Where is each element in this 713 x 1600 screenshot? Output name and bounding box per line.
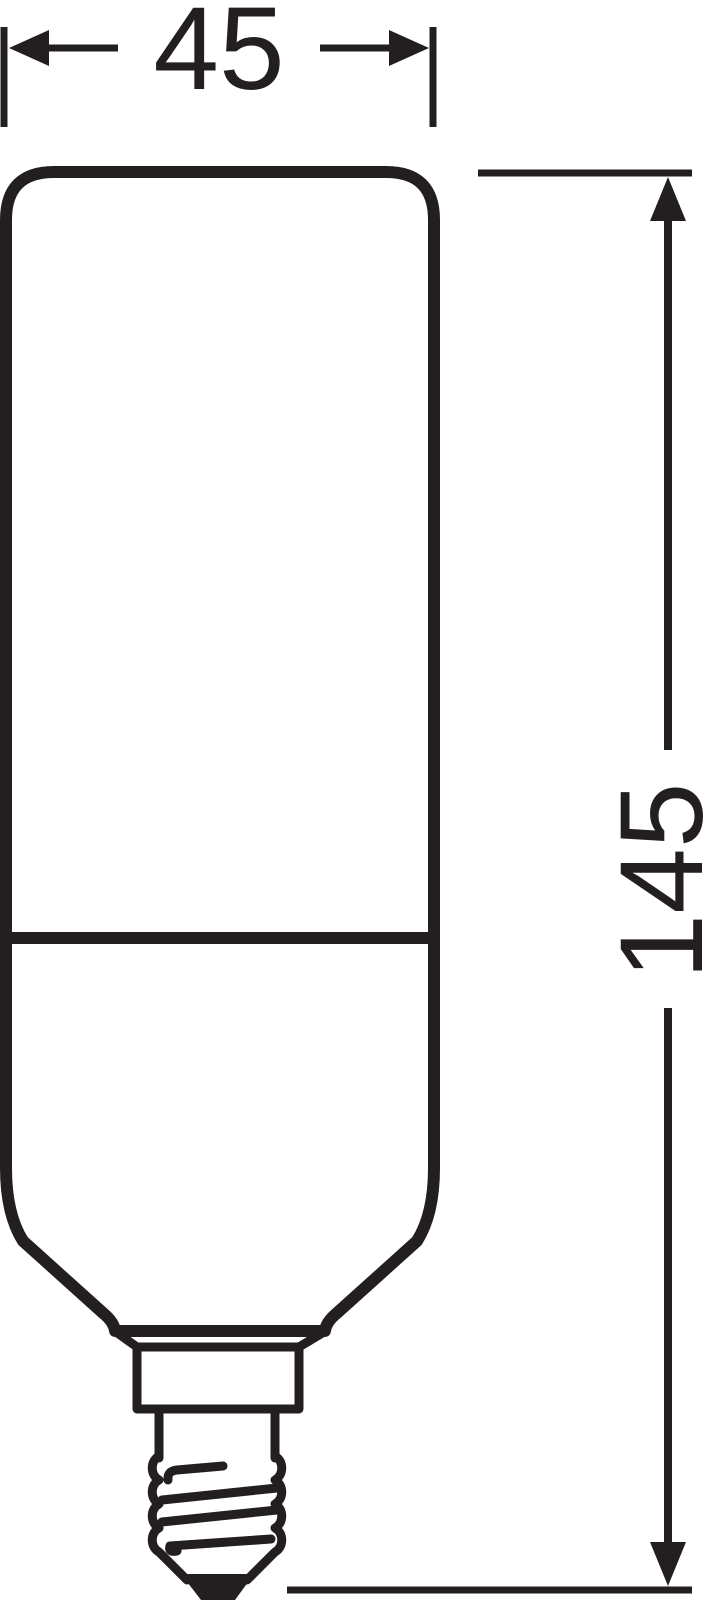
height-dimension-label: 145 <box>596 783 713 980</box>
width-dimension: 45 <box>4 0 433 127</box>
base-contact-tip <box>181 1574 254 1600</box>
height-dimension: 145 <box>287 173 713 1590</box>
height-arrow-down-head <box>650 1542 686 1586</box>
base-thread-line <box>170 1539 271 1551</box>
base-thread-line <box>162 1510 277 1522</box>
width-arrow-left-head <box>9 30 49 66</box>
bulb-body-outline <box>6 172 434 1331</box>
drawing-svg: 45 145 <box>0 0 713 1600</box>
base-thread-line <box>162 1488 277 1500</box>
lamp-body <box>3 172 437 1331</box>
base-skirt <box>137 1347 299 1409</box>
dimension-drawing: 45 145 <box>0 0 713 1600</box>
height-arrow-up-head <box>650 177 686 221</box>
width-dimension-label: 45 <box>153 0 284 115</box>
lamp-base <box>116 1332 324 1600</box>
base-thread-right-edge <box>247 1456 282 1580</box>
base-thread-line <box>168 1466 223 1480</box>
width-arrow-right-head <box>389 30 429 66</box>
